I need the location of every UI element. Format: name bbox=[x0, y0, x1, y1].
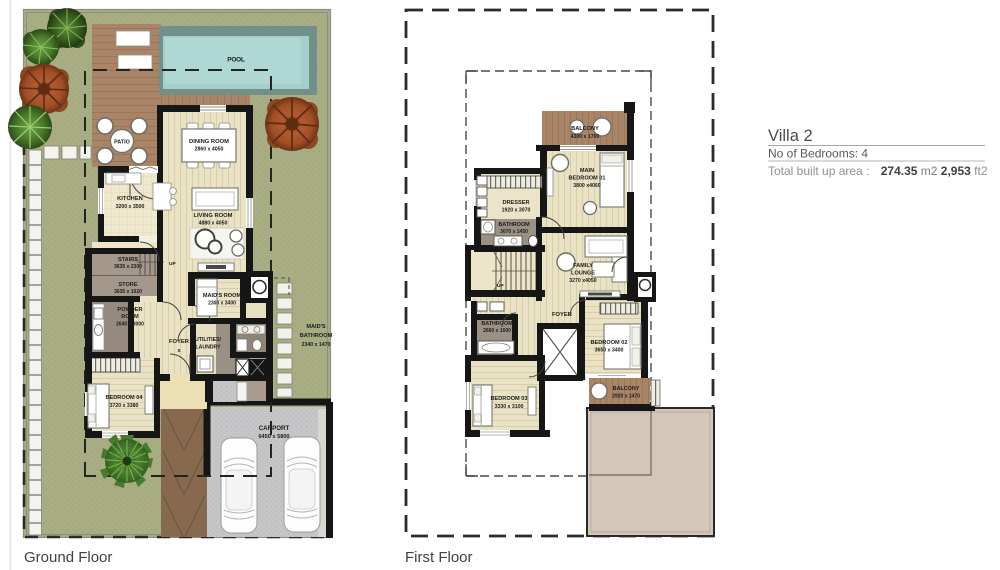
svg-text:3200 x 3500: 3200 x 3500 bbox=[116, 204, 145, 210]
svg-text:LOUNGE: LOUNGE bbox=[571, 271, 595, 277]
svg-text:MAIN: MAIN bbox=[580, 168, 594, 174]
svg-text:1920 x 3070: 1920 x 3070 bbox=[502, 208, 531, 214]
svg-text:LIVING ROOM: LIVING ROOM bbox=[194, 213, 233, 219]
svg-text:BATHROOM: BATHROOM bbox=[498, 222, 530, 228]
svg-text:UTILITIES/: UTILITIES/ bbox=[195, 337, 221, 343]
svg-text:3635 x 1020: 3635 x 1020 bbox=[114, 289, 142, 295]
svg-text:BEDROOM 02: BEDROOM 02 bbox=[591, 340, 628, 346]
svg-text:2920 x 1470: 2920 x 1470 bbox=[612, 394, 640, 400]
svg-text:BALCONY: BALCONY bbox=[571, 126, 599, 132]
svg-text:BEDROOM 03: BEDROOM 03 bbox=[491, 396, 528, 402]
svg-text:4880 x 4050: 4880 x 4050 bbox=[199, 221, 228, 227]
svg-text:UP: UP bbox=[497, 283, 504, 289]
svg-text:3330 x 3100: 3330 x 3100 bbox=[495, 404, 524, 410]
svg-text:ROOM: ROOM bbox=[121, 314, 139, 320]
svg-text:No of Bedrooms: 4: No of Bedrooms: 4 bbox=[768, 147, 868, 161]
svg-text:STAIRS: STAIRS bbox=[118, 257, 138, 263]
svg-text:KITCHEN: KITCHEN bbox=[117, 196, 143, 202]
svg-text:BEDROOM 04: BEDROOM 04 bbox=[106, 395, 144, 401]
svg-text:UP: UP bbox=[169, 261, 176, 267]
svg-text:Total built up area : 274.35 m: Total built up area : 274.35 m2 2,953 ft… bbox=[768, 164, 988, 178]
svg-text:BATHROOM: BATHROOM bbox=[300, 333, 333, 339]
svg-text:3270 x4050: 3270 x4050 bbox=[569, 278, 597, 284]
svg-text:FAMILY: FAMILY bbox=[573, 263, 593, 269]
svg-text:First Floor: First Floor bbox=[405, 549, 473, 566]
svg-text:2300 x 3400: 2300 x 3400 bbox=[208, 301, 236, 307]
svg-text:PATIO: PATIO bbox=[114, 140, 130, 146]
svg-text:STORE: STORE bbox=[118, 282, 137, 288]
svg-text:2640 x 3000: 2640 x 3000 bbox=[116, 322, 144, 328]
svg-text:3800 x4060: 3800 x4060 bbox=[573, 183, 601, 189]
svg-text:Ground Floor: Ground Floor bbox=[24, 549, 112, 566]
svg-text:3070 x 1450: 3070 x 1450 bbox=[500, 229, 528, 235]
svg-text:3650 x 3400: 3650 x 3400 bbox=[595, 348, 624, 354]
svg-text:Villa 2: Villa 2 bbox=[768, 127, 813, 145]
svg-text:2340 x 1470: 2340 x 1470 bbox=[302, 342, 331, 348]
svg-text:4300 x 1700: 4300 x 1700 bbox=[571, 134, 600, 140]
svg-text:MAID'S ROOM: MAID'S ROOM bbox=[203, 293, 242, 299]
svg-text:POOL: POOL bbox=[227, 57, 245, 64]
svg-text:BALCONY: BALCONY bbox=[613, 386, 640, 392]
svg-text:FOYER: FOYER bbox=[169, 339, 190, 345]
svg-text:3635 x 2300: 3635 x 2300 bbox=[114, 264, 142, 270]
svg-text:DRESSER: DRESSER bbox=[502, 200, 529, 206]
svg-text:DINING ROOM: DINING ROOM bbox=[189, 139, 229, 145]
svg-text:BEDROOM 01: BEDROOM 01 bbox=[569, 176, 606, 182]
svg-text:6450 x 5800: 6450 x 5800 bbox=[258, 434, 289, 440]
svg-text:3720 x 3380: 3720 x 3380 bbox=[110, 403, 139, 409]
svg-text:BATHROOM: BATHROOM bbox=[481, 321, 513, 327]
svg-text:2860 x 4050: 2860 x 4050 bbox=[195, 147, 224, 153]
svg-text:2660 x 1600: 2660 x 1600 bbox=[483, 328, 511, 334]
svg-text:CARPORT: CARPORT bbox=[259, 425, 290, 432]
svg-text:POWDER: POWDER bbox=[117, 307, 142, 313]
svg-text:MAID'S: MAID'S bbox=[306, 324, 326, 330]
svg-text:LAUNDRY: LAUNDRY bbox=[195, 345, 221, 351]
